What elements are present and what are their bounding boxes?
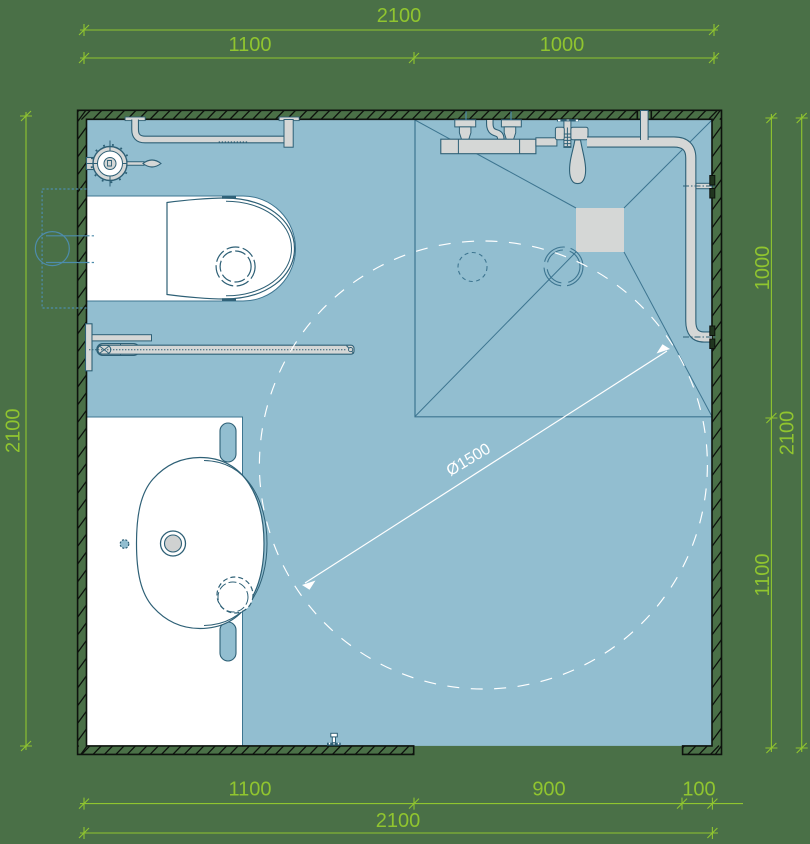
svg-text:2100: 2100: [777, 411, 799, 456]
svg-text:1000: 1000: [540, 34, 585, 56]
svg-text:1000: 1000: [752, 246, 774, 291]
svg-text:2100: 2100: [377, 5, 422, 27]
svg-text:1100: 1100: [228, 779, 271, 801]
svg-text:100: 100: [682, 779, 715, 801]
svg-text:2100: 2100: [2, 408, 24, 453]
svg-text:2100: 2100: [376, 810, 421, 832]
svg-text:900: 900: [532, 779, 565, 801]
svg-text:1100: 1100: [752, 553, 774, 596]
svg-text:1100: 1100: [228, 34, 271, 56]
